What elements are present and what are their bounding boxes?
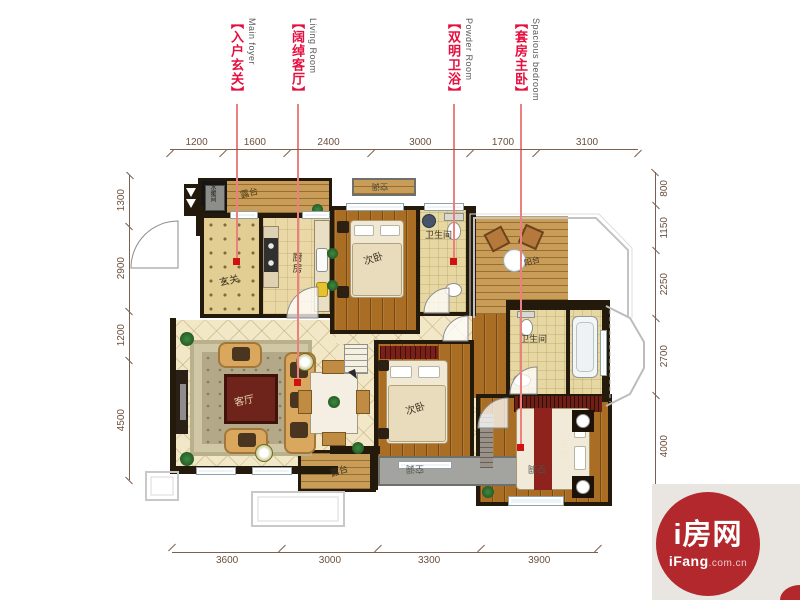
wall-break-icon: [186, 188, 196, 197]
wall-break-icon: [186, 199, 196, 208]
nightstand: [378, 428, 389, 439]
callout-foyer-en: Main foyer: [247, 18, 257, 102]
nightstand: [378, 360, 389, 371]
ifang-logo-circle: i房网 iFang.com.cn: [656, 492, 760, 596]
dim-value: 3300: [418, 555, 440, 566]
pillow: [354, 225, 374, 236]
sofa-cushion: [290, 422, 308, 438]
callout-bath-en: Powder Room: [464, 18, 474, 102]
tv-cabinet: [480, 414, 493, 468]
callout-master-en: Spacious bedroom: [531, 18, 541, 102]
wall: [566, 310, 570, 398]
dim-value: 1300: [116, 189, 127, 211]
dim-value: 1600: [244, 137, 266, 148]
wall: [466, 206, 476, 316]
dim-value: 4500: [116, 409, 127, 431]
dim-value: 2700: [659, 345, 670, 367]
wall: [370, 450, 378, 490]
dim-value: 1200: [185, 137, 207, 148]
corridor-wood-floor: [472, 314, 506, 398]
callout-master-zh: 【套房主卧】: [512, 16, 528, 100]
callout-marker: [450, 258, 457, 265]
room-label-utility: 水暖间: [208, 184, 217, 202]
dim-value: 1150: [659, 217, 670, 239]
lamp-icon: [576, 414, 590, 428]
dim-value: 3000: [319, 555, 341, 566]
window: [600, 330, 607, 376]
callout-marker: [233, 258, 240, 265]
dim-value: 3000: [409, 137, 431, 148]
dim-value: 2900: [116, 257, 127, 279]
nightstand: [337, 286, 349, 298]
window: [196, 467, 236, 475]
room-label-bath-top: 卫生间: [425, 228, 452, 241]
dim-value: 1200: [116, 324, 127, 346]
callout-line: [453, 104, 455, 260]
ac-label: 空调: [372, 181, 388, 192]
dining-chair: [356, 390, 370, 414]
callout-bath-zh: 【双明卫浴】: [445, 16, 461, 100]
dim-value: 3100: [576, 137, 598, 148]
plant-icon: [328, 396, 340, 408]
armchair-cushion: [238, 433, 256, 447]
dimension-right: 800 1150 2250 2700 4000: [655, 172, 673, 498]
stairs: [344, 344, 368, 374]
room-label-bath-master: 卫生间: [520, 332, 547, 345]
dim-value: 3900: [528, 555, 550, 566]
dimension-left: 1300 2900 1200 4500: [112, 175, 130, 480]
dim-value: 800: [659, 180, 670, 197]
dining-chair: [298, 390, 312, 414]
callout-living-en: Living Room: [308, 18, 318, 102]
room-label-kitchen: 厨房: [288, 252, 303, 274]
dim-value: 2400: [317, 137, 339, 148]
ifang-logo-corner-arc: [780, 585, 800, 600]
bookshelf: [380, 346, 438, 359]
armchair-cushion: [232, 347, 250, 361]
dimension-bottom: 3600 3000 3300 3900: [172, 552, 598, 568]
ac-label: 空调: [406, 463, 424, 476]
window: [508, 496, 564, 506]
plant-icon: [327, 248, 338, 259]
bed-runner: [534, 408, 552, 490]
dim-value: 3600: [216, 555, 238, 566]
dim-value: 2250: [659, 273, 670, 295]
callout-line: [236, 104, 238, 260]
room-label-master: 主卧: [555, 438, 570, 460]
lamp-icon: [576, 480, 590, 494]
pillow: [574, 446, 586, 470]
ifang-logo: i房网 iFang.com.cn: [652, 484, 800, 600]
floorplan-image: 露台 水暖间 玄关 厨房 次卧 卫生间 阳台 卫生间 客厅 次卧 主卧 露台 空…: [0, 0, 800, 600]
dimension-top: 1200 1600 2400 3000 1700 3100: [170, 134, 638, 150]
pillow: [380, 225, 400, 236]
washer-icon: [422, 214, 436, 228]
nightstand: [337, 221, 349, 233]
plant-icon: [352, 442, 364, 454]
tv-icon: [180, 384, 186, 420]
callout-line: [520, 104, 522, 446]
plant-icon: [180, 332, 194, 346]
dim-value: 4000: [659, 435, 670, 457]
callout-marker: [517, 444, 524, 451]
dining-chair: [322, 360, 346, 374]
window: [230, 211, 258, 219]
sink-icon: [513, 374, 531, 387]
window: [252, 467, 292, 475]
plant-icon: [482, 486, 494, 498]
dining-chair: [322, 432, 346, 446]
window: [346, 203, 404, 211]
pillow: [390, 366, 412, 378]
ifang-logo-domain: iFang.com.cn: [669, 553, 747, 569]
callout-living-zh: 【阔绰客厅】: [289, 16, 305, 100]
window: [424, 203, 464, 211]
stove-icon: [264, 238, 278, 272]
plant-icon: [327, 280, 338, 291]
ifang-logo-name: i房网: [673, 520, 742, 550]
callout-foyer-zh: 【入户玄关】: [228, 16, 244, 100]
ac-label: 空调: [528, 463, 546, 476]
window: [302, 211, 330, 219]
pillow: [418, 366, 440, 378]
floor-lamp-icon: [255, 444, 273, 462]
plant-icon: [180, 452, 194, 466]
bathtub-icon: [576, 322, 594, 372]
foyer-room: [200, 214, 263, 318]
dim-value: 1700: [492, 137, 514, 148]
callout-marker: [294, 379, 301, 386]
sink-icon: [445, 283, 462, 297]
